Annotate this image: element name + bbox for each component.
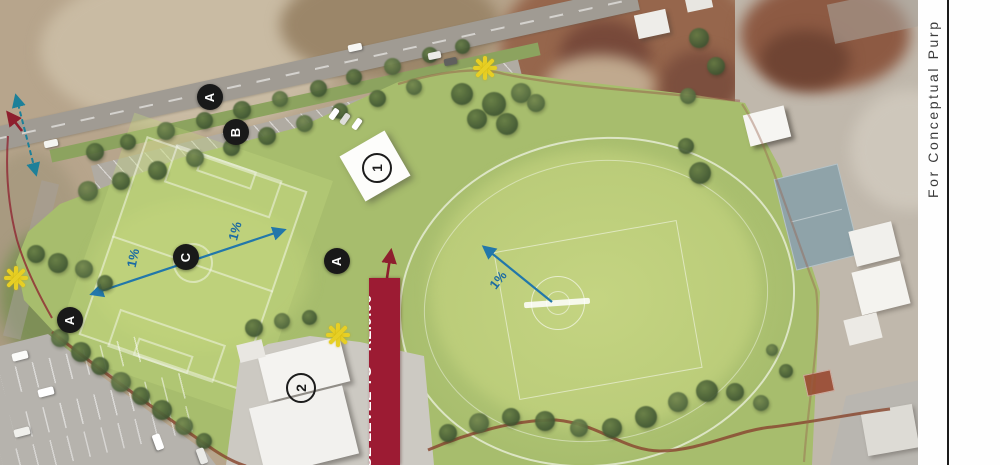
tree-icon (369, 90, 386, 107)
tree-icon (779, 364, 793, 378)
tree-icon (175, 417, 193, 435)
conceptual-note: For Conceptual Purp (925, 19, 941, 198)
tree-icon (689, 28, 709, 48)
site-plan: ABCAA121%1%1% RAISE LEVEL TO ~RL.9.00 Fo… (0, 0, 1000, 465)
tree-icon (302, 310, 317, 325)
number-marker-label: 2 (293, 384, 309, 392)
perimeter-path (742, 104, 817, 462)
letter-marker-label: C (178, 252, 193, 261)
tree-icon (120, 134, 136, 150)
tree-icon (689, 162, 711, 184)
letter-marker: A (197, 84, 223, 110)
tree-icon (196, 112, 213, 129)
star-icon (473, 56, 497, 80)
letter-marker: B (223, 119, 249, 145)
letter-marker-label: A (329, 256, 344, 265)
tree-icon (310, 80, 327, 97)
tree-icon (439, 424, 457, 442)
raise-level-arrow-icon (387, 251, 391, 278)
tree-icon (766, 344, 778, 356)
tree-icon (97, 275, 113, 291)
tree-icon (91, 357, 109, 375)
number-marker: 1 (362, 153, 392, 183)
tree-icon (196, 433, 212, 449)
tree-icon (186, 149, 204, 167)
number-marker: 2 (286, 373, 316, 403)
tree-icon (384, 58, 401, 75)
letter-marker-label: A (62, 315, 77, 324)
tree-icon (406, 79, 422, 95)
tree-icon (75, 260, 93, 278)
tree-icon (635, 406, 657, 428)
tree-icon (455, 39, 470, 54)
tree-icon (274, 313, 290, 329)
tree-icon (527, 94, 545, 112)
raise-level-label: RAISE LEVEL TO ~RL.9.00 (369, 294, 375, 465)
star-icon (326, 323, 350, 347)
letter-marker: C (173, 244, 199, 270)
tree-icon (86, 143, 104, 161)
tree-icon (696, 380, 718, 402)
perimeter-path (428, 409, 890, 451)
tree-icon (245, 319, 263, 337)
tree-icon (78, 181, 98, 201)
letter-marker-label: B (228, 127, 243, 136)
tree-icon (48, 253, 68, 273)
tree-icon (680, 88, 696, 104)
tree-icon (148, 161, 167, 180)
letter-marker: A (324, 248, 350, 274)
letter-marker: A (57, 307, 83, 333)
number-marker-label: 1 (369, 164, 385, 172)
tree-icon (668, 392, 688, 412)
tree-icon (152, 400, 172, 420)
tree-icon (570, 419, 588, 437)
boundary-arrow-icon (8, 113, 22, 131)
star-icon (4, 266, 28, 290)
tree-icon (112, 172, 130, 190)
tree-icon (753, 395, 769, 411)
tree-icon (482, 92, 506, 116)
tree-icon (233, 101, 251, 119)
tree-icon (71, 342, 91, 362)
annotation-overlay (0, 0, 1000, 465)
sheet-border-line (947, 0, 949, 465)
tree-icon (496, 113, 518, 135)
tree-icon (258, 127, 276, 145)
sheet-margin: For Conceptual Purp (918, 0, 1000, 465)
tree-icon (132, 387, 150, 405)
tree-icon (296, 115, 313, 132)
tree-icon (467, 109, 487, 129)
tree-icon (157, 122, 175, 140)
tree-icon (726, 383, 744, 401)
tree-icon (535, 411, 555, 431)
letter-marker-label: A (202, 92, 217, 101)
tree-icon (469, 413, 489, 433)
tree-icon (27, 245, 45, 263)
tree-icon (346, 69, 362, 85)
tree-icon (602, 418, 622, 438)
tree-icon (707, 57, 725, 75)
tree-icon (678, 138, 694, 154)
tree-icon (502, 408, 520, 426)
tree-icon (272, 91, 288, 107)
tree-icon (451, 83, 473, 105)
raise-level-banner: RAISE LEVEL TO ~RL.9.00 (369, 278, 400, 465)
survey-arrow-icon (16, 96, 36, 174)
site-boundary-line (7, 136, 52, 318)
tree-icon (111, 372, 131, 392)
